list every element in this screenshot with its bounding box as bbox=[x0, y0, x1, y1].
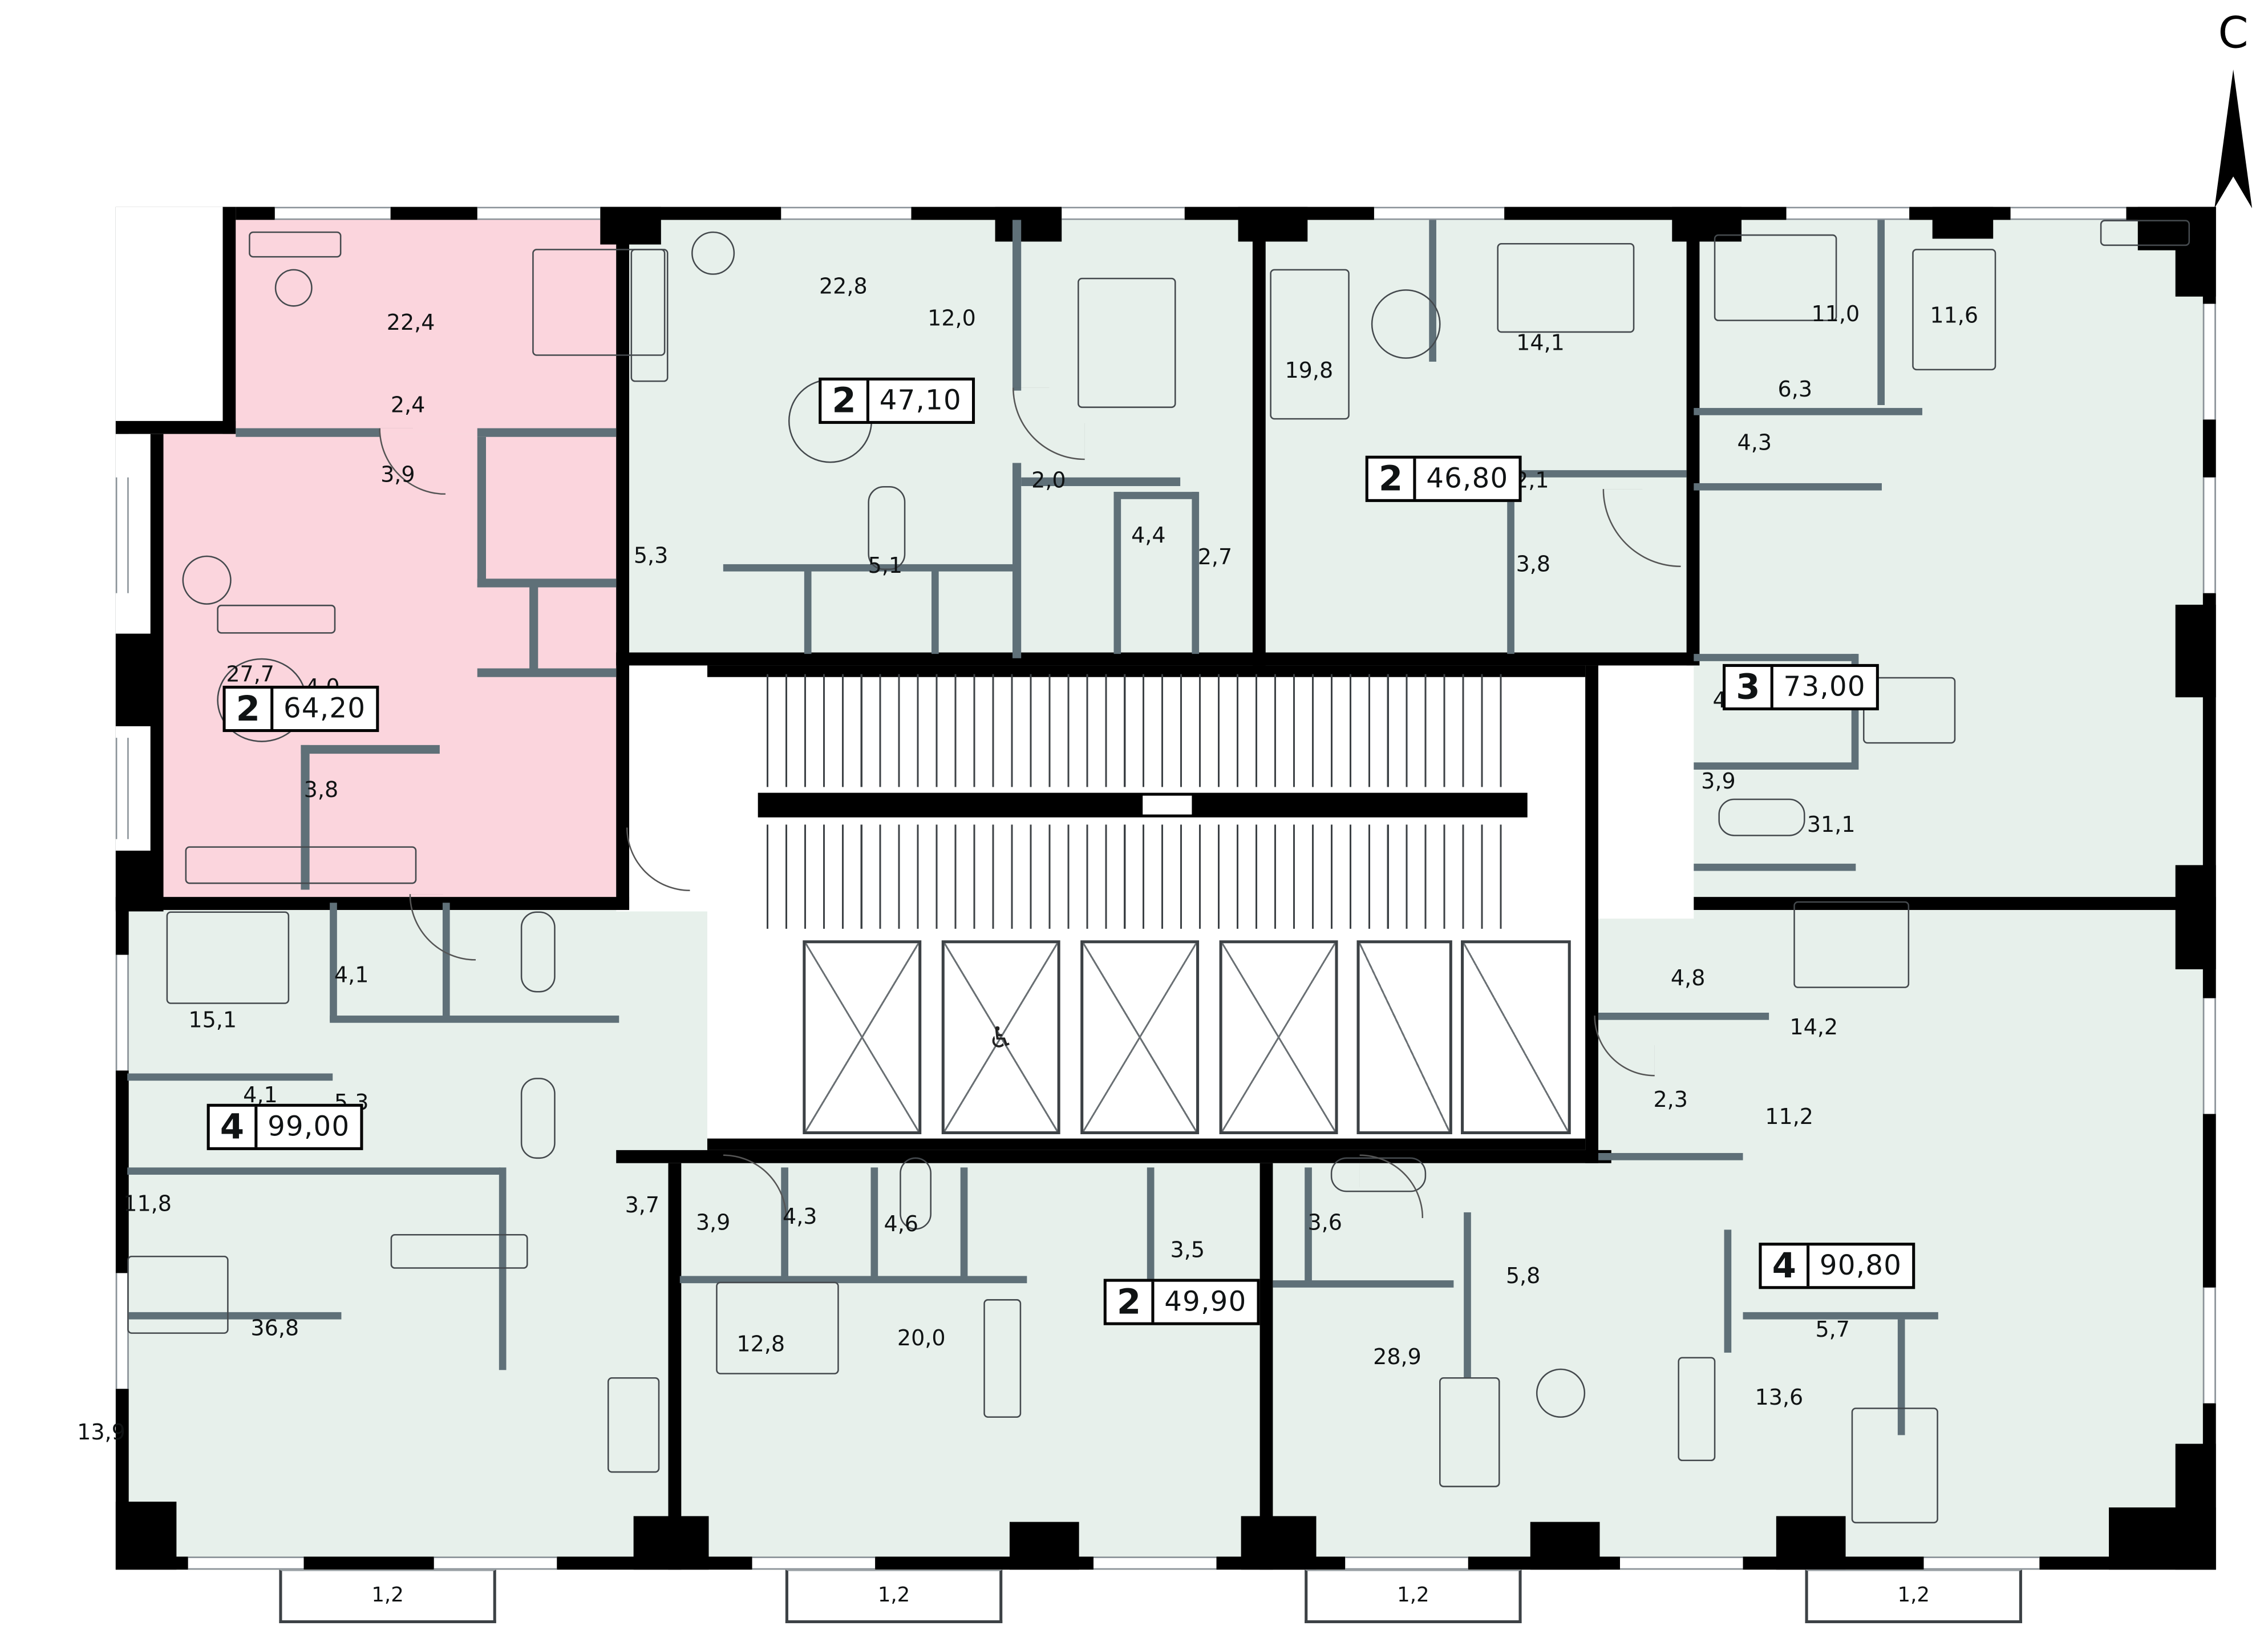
wall-segment bbox=[616, 1150, 1611, 1163]
room-area-label: 3,6 bbox=[1307, 1210, 1342, 1236]
wall-pier bbox=[600, 207, 661, 245]
elevator-cell bbox=[803, 940, 921, 1134]
apartment-area: 99,00 bbox=[257, 1107, 360, 1147]
apartment-area: 90,80 bbox=[1809, 1245, 1912, 1286]
partition-wall bbox=[1694, 408, 1922, 415]
wall-segment bbox=[1585, 665, 1598, 1163]
wall-pier bbox=[1530, 1522, 1600, 1570]
desk-furniture bbox=[249, 232, 341, 258]
bed-furniture bbox=[716, 1282, 839, 1374]
balcony-area-label: 1,2 bbox=[1397, 1584, 1429, 1608]
apartment-area: 46,80 bbox=[1416, 459, 1518, 499]
window bbox=[1062, 207, 1185, 220]
apartment-area: 47,10 bbox=[869, 381, 972, 421]
stair-flight bbox=[767, 824, 1519, 929]
wall-pier bbox=[2176, 1444, 2216, 1570]
room-area-label: 4,6 bbox=[884, 1211, 918, 1237]
room-area-label: 3,9 bbox=[380, 462, 415, 488]
window bbox=[1093, 1556, 1217, 1570]
service-shaft bbox=[1356, 940, 1452, 1134]
bathtub-fixture bbox=[521, 911, 556, 992]
balcony-area-label: 1,2 bbox=[371, 1584, 403, 1608]
room-area-label: 3,9 bbox=[1701, 768, 1736, 794]
compass-north-label: С bbox=[2204, 9, 2262, 59]
room-area-label: 11,0 bbox=[1811, 301, 1860, 327]
room-area-label: 4,3 bbox=[783, 1204, 817, 1230]
sofa-furniture bbox=[217, 605, 335, 634]
apartment-rooms-count: 4 bbox=[210, 1107, 258, 1147]
wall-pier bbox=[116, 1502, 176, 1570]
wall-pier bbox=[1241, 1516, 1317, 1570]
wall-segment bbox=[1694, 897, 2216, 910]
room-area-label: 5,1 bbox=[868, 553, 903, 579]
room-area-label: 14,1 bbox=[1516, 330, 1565, 356]
partition-wall bbox=[1507, 486, 1514, 654]
apartment-rooms-count: 2 bbox=[821, 381, 869, 421]
apartment-area: 49,90 bbox=[1154, 1282, 1257, 1322]
partition-wall bbox=[1192, 492, 1199, 654]
partition-wall bbox=[236, 428, 380, 437]
window bbox=[2203, 998, 2216, 1114]
table-furniture bbox=[607, 1377, 659, 1473]
partition-wall bbox=[477, 579, 616, 587]
room-area-label: 31,1 bbox=[1807, 812, 1856, 838]
window bbox=[188, 1556, 304, 1570]
window bbox=[2011, 207, 2127, 220]
balcony-area-label: 1,2 bbox=[1897, 1584, 1929, 1608]
floor-plan: ♿ bbox=[0, 0, 2268, 1629]
apartment-rooms-count: 2 bbox=[1107, 1282, 1155, 1322]
wall-pier bbox=[2176, 605, 2216, 697]
partition-wall bbox=[1147, 1167, 1155, 1280]
kitchen-counter bbox=[185, 846, 417, 884]
room-area-label: 5,3 bbox=[634, 543, 669, 569]
stair-flight bbox=[767, 674, 1519, 787]
room-area-label: 11,8 bbox=[123, 1191, 172, 1217]
window bbox=[781, 207, 911, 220]
window bbox=[2203, 304, 2216, 419]
partition-wall bbox=[931, 567, 939, 654]
wall-pier bbox=[116, 851, 164, 911]
partition-wall bbox=[1113, 492, 1121, 654]
table-furniture bbox=[1439, 1377, 1500, 1487]
sofa-furniture bbox=[631, 249, 669, 382]
partition-wall bbox=[477, 668, 616, 677]
room-area-label: 3,8 bbox=[304, 777, 339, 803]
room-area-label: 3,7 bbox=[625, 1192, 660, 1218]
partition-wall bbox=[1598, 1153, 1743, 1160]
elevator-cell bbox=[1220, 940, 1338, 1134]
partition-wall bbox=[330, 1016, 619, 1023]
bathtub-fixture bbox=[1718, 799, 1805, 836]
wall-pier bbox=[634, 1516, 709, 1570]
partition-wall bbox=[1012, 463, 1021, 658]
partition-wall bbox=[477, 428, 616, 437]
room-area-label: 19,8 bbox=[1285, 357, 1333, 383]
apartment-rooms-count: 2 bbox=[226, 689, 274, 729]
room-area-label: 11,2 bbox=[1765, 1104, 1813, 1130]
wall-pier bbox=[1010, 1522, 1079, 1570]
wall-pier bbox=[2176, 865, 2216, 969]
room-area-label: 2,7 bbox=[1198, 544, 1233, 570]
partition-wall bbox=[529, 587, 538, 668]
building-notch bbox=[116, 207, 236, 434]
window bbox=[116, 955, 129, 1071]
compass-arrow-icon bbox=[2214, 70, 2252, 208]
window bbox=[434, 1556, 557, 1570]
partition-wall bbox=[961, 1167, 968, 1280]
wheelchair-icon: ♿ bbox=[988, 1020, 1014, 1055]
partition-wall bbox=[1113, 492, 1197, 499]
partition-wall bbox=[127, 1073, 333, 1081]
wall-pier bbox=[995, 207, 1062, 242]
wall-segment bbox=[1260, 1163, 1273, 1570]
room-area-label: 4,3 bbox=[1738, 430, 1772, 456]
window bbox=[477, 207, 601, 220]
bathtub-fixture bbox=[521, 1078, 556, 1159]
window bbox=[752, 1556, 876, 1570]
wall-pier bbox=[1238, 207, 1308, 242]
wall-segment bbox=[668, 1163, 681, 1570]
partition-wall bbox=[1012, 220, 1021, 390]
wall-segment bbox=[1253, 214, 1266, 665]
window bbox=[1787, 207, 1910, 220]
window bbox=[1345, 1556, 1468, 1570]
elevator-cell bbox=[1080, 940, 1199, 1134]
room-area-label: 11,6 bbox=[1930, 302, 1978, 329]
stair-landing-gap bbox=[1143, 796, 1192, 815]
bed-furniture bbox=[1793, 901, 1909, 988]
balcony: 1,2 bbox=[279, 1570, 496, 1623]
armchair-furniture bbox=[1536, 1369, 1585, 1418]
bed-furniture bbox=[127, 1256, 228, 1334]
window bbox=[2203, 1288, 2216, 1404]
partition-wall bbox=[870, 1167, 878, 1280]
window bbox=[116, 738, 129, 839]
armchair-furniture bbox=[691, 232, 735, 275]
room-area-label: 28,9 bbox=[1373, 1344, 1421, 1370]
room-area-label: 6,3 bbox=[1778, 376, 1813, 402]
room-area-label: 3,8 bbox=[1516, 551, 1551, 577]
partition-wall bbox=[1877, 220, 1885, 405]
room-area-label: 27,7 bbox=[226, 661, 274, 687]
bed-furniture bbox=[167, 911, 290, 1004]
apartment-tag-47-10[interactable]: 2 47,10 bbox=[819, 378, 975, 424]
room-area-label: 22,4 bbox=[387, 310, 435, 336]
apartment-rooms-count: 4 bbox=[1761, 1245, 1809, 1286]
apartment-area: 64,20 bbox=[273, 689, 376, 729]
partition-wall bbox=[1273, 1280, 1453, 1288]
room-area-label: 14,2 bbox=[1789, 1014, 1838, 1041]
window bbox=[1620, 1556, 1743, 1570]
sofa-furniture bbox=[1678, 1357, 1715, 1461]
balcony-area-label: 1,2 bbox=[878, 1584, 910, 1608]
apartment-tag-73-00[interactable]: 3 73,00 bbox=[1723, 664, 1879, 710]
apartment-tag-99-00[interactable]: 4 99,00 bbox=[207, 1104, 363, 1150]
window bbox=[1923, 1556, 2039, 1570]
sofa-furniture bbox=[983, 1299, 1021, 1418]
desk-furniture bbox=[2100, 220, 2190, 246]
room-area-label: 2,4 bbox=[391, 392, 426, 418]
corridor bbox=[1598, 665, 1694, 919]
room-area-label: 36,8 bbox=[250, 1315, 299, 1341]
room-area-label: 13,9 bbox=[77, 1419, 125, 1446]
wall-pier bbox=[1776, 1516, 1846, 1570]
room-area-label: 3,9 bbox=[696, 1210, 731, 1236]
table-furniture bbox=[1371, 289, 1441, 359]
apartment-tag-90-80[interactable]: 4 90,80 bbox=[1759, 1243, 1915, 1289]
room-area-label: 2,3 bbox=[1653, 1086, 1688, 1113]
balcony: 1,2 bbox=[785, 1570, 1002, 1623]
armchair-furniture bbox=[182, 556, 231, 605]
apartment-tag-46-80[interactable]: 2 46,80 bbox=[1366, 456, 1522, 502]
bed-furniture bbox=[1852, 1407, 1938, 1523]
sofa-furniture bbox=[391, 1234, 528, 1269]
window bbox=[1374, 207, 1504, 220]
room-area-label: 2,0 bbox=[1031, 467, 1066, 494]
room-area-label: 15,1 bbox=[188, 1007, 237, 1033]
room-area-label: 12,0 bbox=[928, 305, 976, 331]
window bbox=[2203, 478, 2216, 593]
room-area-label: 4,8 bbox=[1671, 965, 1706, 991]
window bbox=[275, 207, 391, 220]
partition-wall bbox=[1694, 483, 1882, 491]
apartment-tag-64-20[interactable]: 2 64,20 bbox=[222, 686, 379, 732]
room-area-label: 12,8 bbox=[736, 1331, 785, 1357]
partition-wall bbox=[127, 1167, 500, 1175]
room-area-label: 20,0 bbox=[897, 1325, 946, 1352]
apartment-tag-49-90[interactable]: 2 49,90 bbox=[1104, 1279, 1260, 1325]
bed-furniture bbox=[1497, 243, 1634, 333]
apartment-rooms-count: 2 bbox=[1368, 459, 1416, 499]
sofa-furniture bbox=[1270, 269, 1349, 420]
room-area-label: 13,6 bbox=[1755, 1385, 1804, 1411]
partition-wall bbox=[1694, 654, 1857, 661]
wall-segment bbox=[616, 653, 1694, 666]
partition-wall bbox=[804, 567, 812, 654]
balcony: 1,2 bbox=[1805, 1570, 2022, 1623]
room-area-label: 22,8 bbox=[819, 273, 868, 300]
wall-segment bbox=[116, 897, 629, 910]
apartment-rooms-count: 3 bbox=[1726, 667, 1773, 707]
window bbox=[116, 478, 129, 593]
service-shaft bbox=[1461, 940, 1571, 1134]
partition-wall bbox=[301, 745, 439, 754]
wall-pier bbox=[1933, 207, 1993, 239]
partition-wall bbox=[477, 437, 486, 588]
partition-wall bbox=[1694, 864, 1856, 871]
wall-pier bbox=[116, 634, 156, 726]
bed-furniture bbox=[1078, 278, 1176, 408]
balcony: 1,2 bbox=[1305, 1570, 1521, 1623]
room-area-label: 3,5 bbox=[1171, 1237, 1205, 1263]
partition-wall bbox=[1724, 1229, 1732, 1353]
room-area-label: 5,8 bbox=[1506, 1263, 1541, 1289]
room-area-label: 4,4 bbox=[1131, 522, 1166, 548]
chair-furniture bbox=[275, 269, 313, 307]
room-area-label: 5,7 bbox=[1815, 1316, 1850, 1342]
apartment-area: 73,00 bbox=[1773, 667, 1876, 707]
room-area-label: 4,1 bbox=[334, 962, 369, 988]
partition-wall bbox=[1464, 1212, 1471, 1379]
wall-segment bbox=[1687, 214, 1700, 665]
